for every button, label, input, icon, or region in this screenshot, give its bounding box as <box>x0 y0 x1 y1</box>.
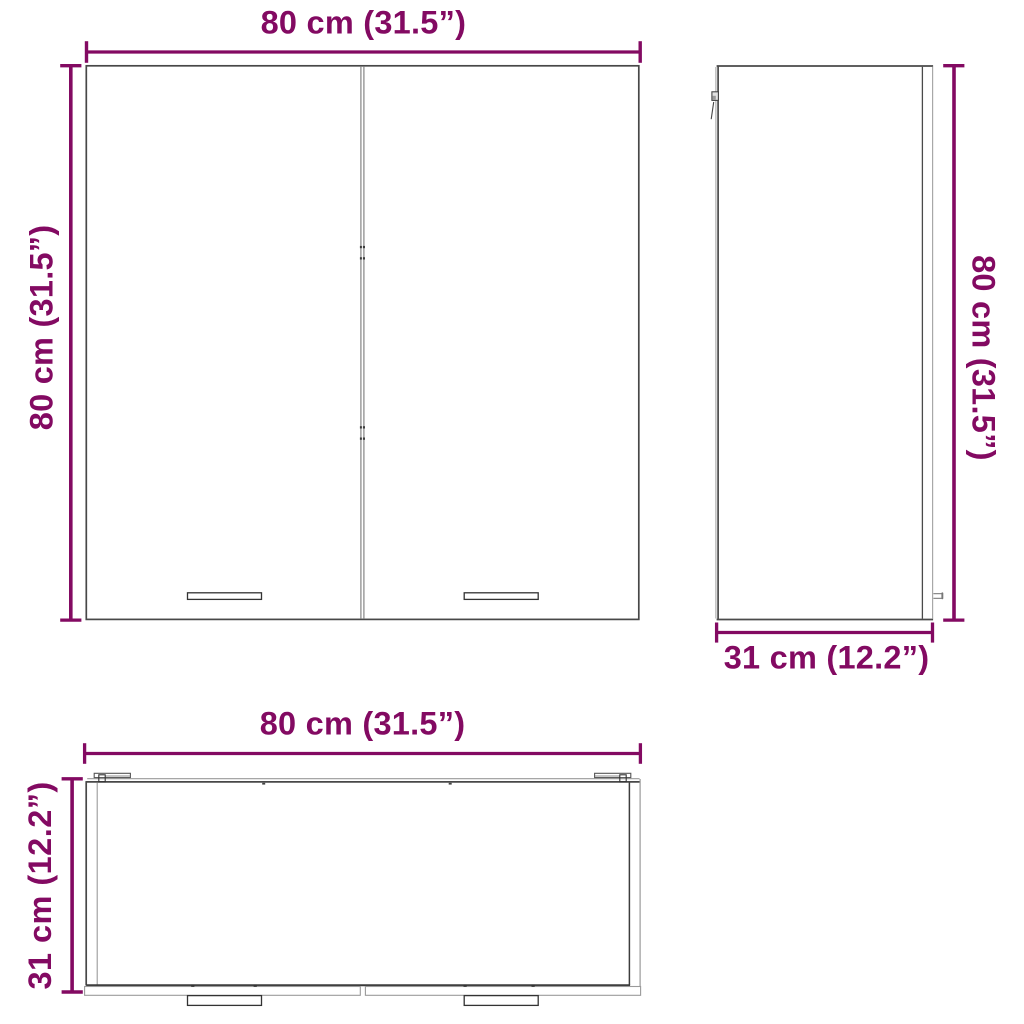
svg-text:31 cm (12.2”): 31 cm (12.2”) <box>22 781 58 989</box>
svg-text:31 cm (12.2”): 31 cm (12.2”) <box>724 640 930 676</box>
svg-text:80 cm (31.5”): 80 cm (31.5”) <box>260 706 466 742</box>
svg-text:80 cm (31.5”): 80 cm (31.5”) <box>966 255 1002 461</box>
svg-text:80 cm (31.5”): 80 cm (31.5”) <box>24 225 60 431</box>
svg-text:80 cm (31.5”): 80 cm (31.5”) <box>261 5 467 41</box>
